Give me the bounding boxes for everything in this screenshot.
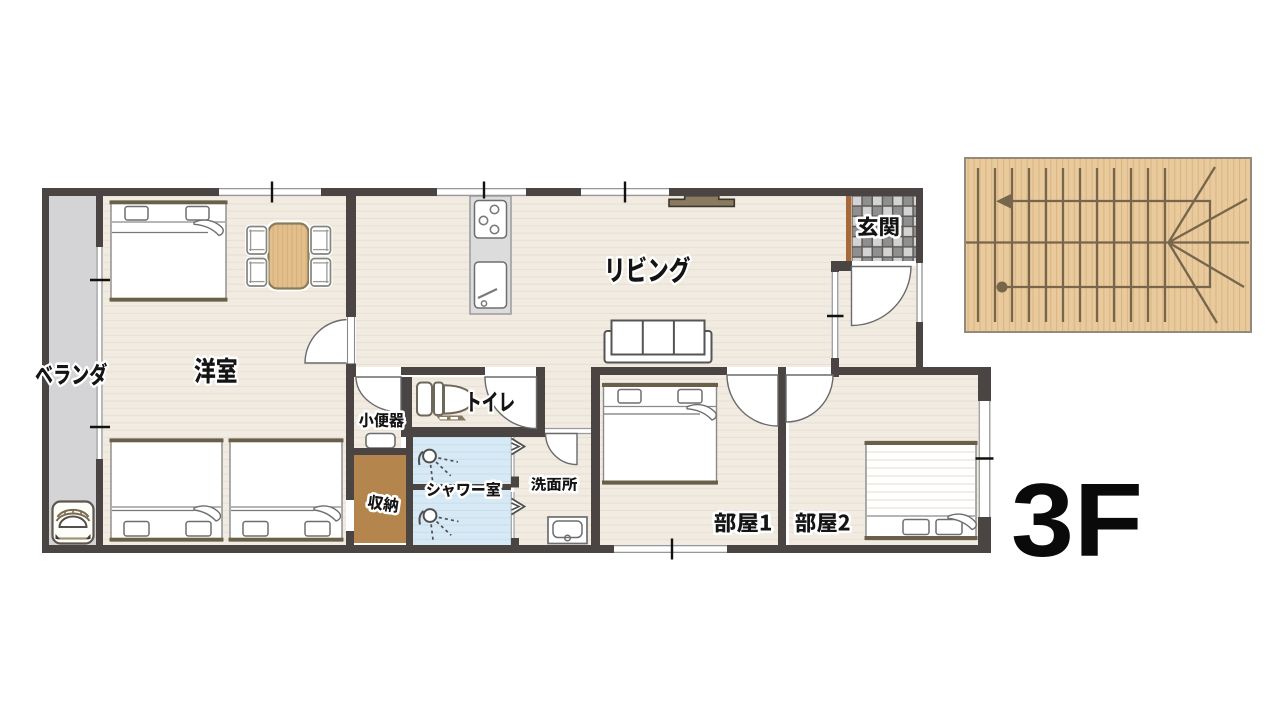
svg-text:3F: 3F [1011, 463, 1143, 579]
